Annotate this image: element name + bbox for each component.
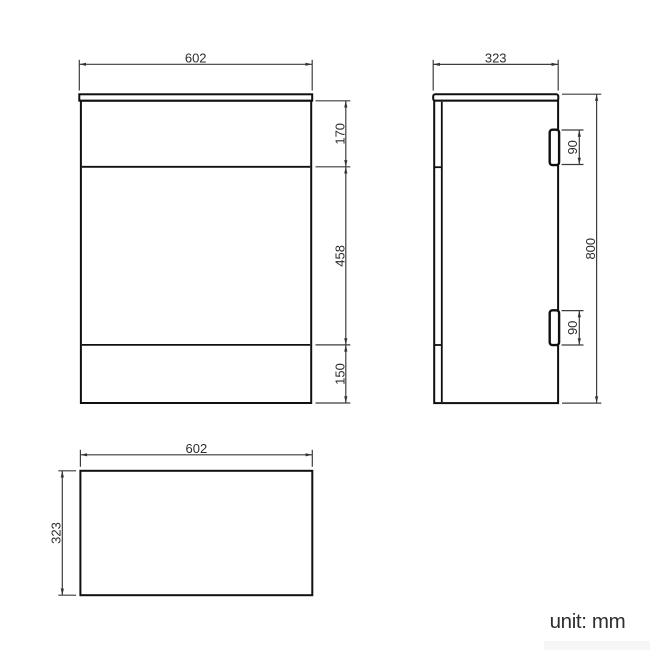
svg-text:170: 170 [332, 123, 347, 145]
svg-text:458: 458 [332, 245, 347, 267]
svg-text:602: 602 [186, 441, 208, 456]
svg-text:323: 323 [49, 522, 64, 544]
svg-text:800: 800 [583, 238, 598, 260]
svg-text:150: 150 [332, 363, 347, 385]
svg-text:323: 323 [485, 51, 507, 66]
svg-text:90: 90 [565, 321, 580, 335]
svg-text:unit: mm: unit: mm [550, 610, 626, 633]
svg-text:90: 90 [565, 140, 580, 154]
svg-text:602: 602 [185, 51, 207, 66]
